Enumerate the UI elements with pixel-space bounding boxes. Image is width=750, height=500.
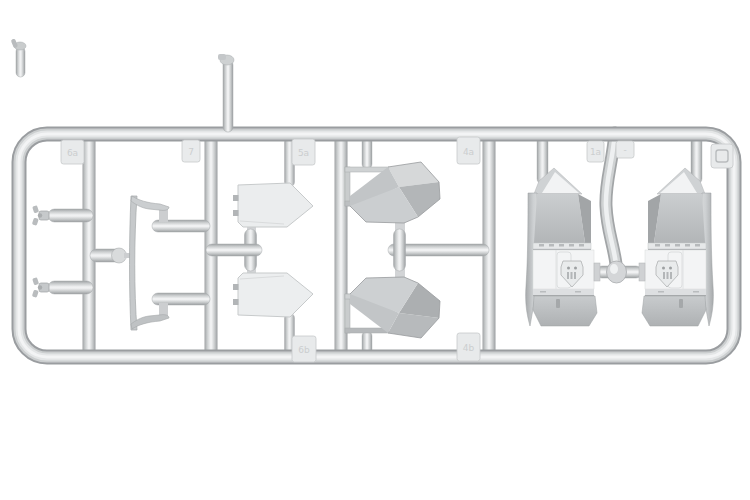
part-fender-top: [345, 162, 440, 223]
part-windshield-bracket: [130, 196, 211, 330]
runner-divider-1: [83, 131, 96, 360]
sprue-tab: 6a: [61, 140, 84, 164]
part-cab-assembly-right: [639, 136, 713, 326]
sprue-gate-stub-far-left: [11, 38, 26, 77]
runner-arms-cab-section: [596, 261, 642, 283]
sprue-tab: 6b: [292, 336, 316, 362]
part-window-pane-bottom: [233, 273, 313, 317]
sprue-tab: 1a: [587, 141, 604, 162]
sprue-illustration: 6a 7 5a 4a 1a - 6b: [0, 0, 750, 500]
embossed-mark: 4a: [463, 147, 474, 157]
embossed-mark: 4b: [463, 343, 475, 353]
part-cab-assembly-left: [526, 136, 600, 326]
runner-arms-pane-section: [206, 137, 295, 361]
sprue-tab: 4b: [457, 333, 480, 361]
sprue-gate-stub-left: [218, 54, 234, 132]
part-fender-bottom: [345, 277, 440, 338]
embossed-mark: 5a: [298, 148, 309, 158]
embossed-mark: 1a: [590, 147, 601, 157]
runner-divider-5-bent: [606, 133, 616, 264]
embossed-mark: 6b: [298, 345, 310, 355]
sprue-photo: 6a 7 5a 4a 1a - 6b: [0, 0, 750, 500]
embossed-mark: -: [623, 145, 626, 155]
embossed-mark: 6a: [67, 148, 78, 158]
part-small-fitting-upper: [32, 205, 49, 226]
sprue-tab: 4a: [457, 137, 480, 164]
sprue-tab: 5a: [292, 139, 315, 165]
sprue-tab: -: [616, 141, 634, 158]
sprue-tab: 7: [182, 140, 200, 162]
embossed-mark: 7: [188, 147, 194, 157]
part-window-pane-top: [233, 183, 313, 227]
sprue-tab: [711, 144, 733, 168]
part-small-fitting-lower: [32, 277, 49, 298]
